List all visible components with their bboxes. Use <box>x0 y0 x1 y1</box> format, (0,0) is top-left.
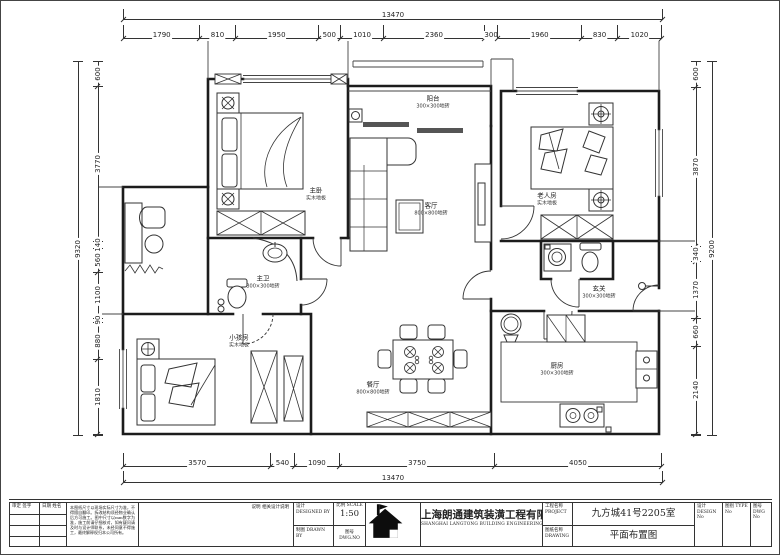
dim-label: 2360 <box>424 31 444 39</box>
dim-label: 600 <box>94 66 102 83</box>
titleblock-date-column: 日期 姓名 <box>40 503 67 546</box>
room-label-master-bath: 主卫300×300地砖 <box>246 275 279 289</box>
dim-segment: 880 <box>93 323 103 360</box>
dim-label: 500 <box>322 31 337 39</box>
dim-segment: 1020 <box>617 25 661 38</box>
kids-room-bed <box>137 339 303 425</box>
dim-label: 90 <box>94 314 102 327</box>
titleblock-sign-column: 审定 签字 <box>10 503 40 546</box>
dim-total-left: 9320 <box>73 61 83 436</box>
dim-segment: 1100 <box>93 273 103 319</box>
dim-label: 1370 <box>692 279 700 301</box>
dim-segment: 140 <box>93 242 103 249</box>
dim-label: 9200 <box>708 238 716 260</box>
dim-segment: 1960 <box>497 25 581 38</box>
room-label-kitchen: 厨房300×300地砖 <box>540 362 573 376</box>
dining-set <box>367 325 491 427</box>
dim-label: 340 <box>692 245 700 262</box>
tail-type-cell: 图别 TYPE No <box>723 503 751 546</box>
dim-segment: 500 <box>318 25 340 38</box>
drawing-name: 平面布置图 <box>573 525 694 546</box>
company-cell: 上海朗通建筑装潢工程有限公司 SHANGHAI LANGTONG BUILDIN… <box>421 503 543 546</box>
dim-segment: 3770 <box>93 87 103 242</box>
dim-label: 13470 <box>380 474 406 482</box>
title-block: 审定 签字 日期 姓名 本图纸尺寸以现场实际尺寸为准，不得擅自翻印。拆改结构须经… <box>9 502 772 547</box>
room-label-living-room: 客厅800×800地砖 <box>414 202 447 216</box>
dim-segment: 660 <box>691 319 701 347</box>
dim-label: 9320 <box>74 238 82 260</box>
room-label-balcony: 阳台300×300地砖 <box>416 95 449 109</box>
sliding-door-balcony <box>363 122 463 133</box>
dim-segment: 1010 <box>340 25 384 38</box>
dim-chain-bottom: 3570540109037504050 <box>123 453 662 467</box>
dim-label: 1950 <box>267 31 287 39</box>
dim-label: 600 <box>692 66 700 83</box>
dim-label: 830 <box>592 31 607 39</box>
dim-segment: 340 <box>691 247 701 262</box>
dim-label: 1010 <box>352 31 372 39</box>
dim-segment: 1370 <box>691 262 701 319</box>
dim-segment: 4050 <box>494 453 661 466</box>
elder-room-bed <box>531 103 613 239</box>
dim-chain-right: 600387034013706602140 <box>691 61 701 436</box>
dim-segment: 600 <box>93 62 103 87</box>
dim-label: 660 <box>692 323 700 340</box>
dim-label: 4050 <box>568 459 588 467</box>
desk-area <box>125 203 165 273</box>
dim-segment: 600 <box>691 62 701 88</box>
dim-total-top: 13470 <box>123 9 663 20</box>
dim-segment: 830 <box>581 25 617 38</box>
room-label-elder-room: 老人房实木地板 <box>537 192 557 206</box>
project-name: 九方城41号2205室 <box>573 503 694 524</box>
dim-label: 1100 <box>94 284 102 306</box>
dim-chain-left: 60037701405601100908801810 <box>93 61 103 436</box>
project-label-column: 工程名称 PROJECT 图纸名称 DRAWING <box>543 503 573 546</box>
dim-segment: 3870 <box>691 88 701 247</box>
dim-segment: 3570 <box>123 453 270 466</box>
titleblock-notes: 本图纸尺寸以现场实际尺寸为准，不得擅自翻印。拆改结构须经物业确认后方可施工。图中… <box>67 503 139 546</box>
house-logo-icon <box>366 503 406 540</box>
company-logo-cell <box>366 503 421 546</box>
dim-segment: 90 <box>93 319 103 324</box>
titleblock-scale-cell: 比例 SCALE 1:50 图号 DWG.NO <box>334 503 366 546</box>
dim-label: 880 <box>94 333 102 350</box>
drawing-sheet: 13470 1790810195050010102360300196083010… <box>0 0 780 555</box>
dim-label: 3570 <box>187 459 207 467</box>
dim-label: 1090 <box>307 459 327 467</box>
dim-total-right: 9200 <box>707 61 717 436</box>
dim-segment: 2140 <box>691 347 701 435</box>
tail-design-cell: 设计 DESIGN No <box>695 503 723 546</box>
dim-segment: 1810 <box>93 360 103 435</box>
room-label-dining-room: 餐厅800×800地砖 <box>356 381 389 395</box>
dim-label: 1960 <box>530 31 550 39</box>
dim-label: 3870 <box>692 156 700 178</box>
dim-chain-top: 179081019505001010236030019608301020 <box>123 25 662 39</box>
dim-label: 13470 <box>380 11 406 19</box>
dim-segment: 1090 <box>294 453 340 466</box>
room-label-entry: 玄关300×300地砖 <box>582 285 615 299</box>
dim-label: 2140 <box>692 379 700 401</box>
dim-label: 1810 <box>94 386 102 408</box>
company-name-en: SHANGHAI LANGTONG BUILDING ENGINEERING C… <box>421 522 542 527</box>
kitchen-fixtures <box>501 315 657 432</box>
tail-number-cell: 图号 DWG No <box>751 503 771 546</box>
dim-label: 1020 <box>630 31 650 39</box>
company-name-cn: 上海朗通建筑装潢工程有限公司 <box>421 509 542 522</box>
dim-segment: 3750 <box>339 453 494 466</box>
room-label-master-bedroom: 主卧实木地板 <box>306 187 326 201</box>
master-bed <box>217 93 305 235</box>
dim-label: 540 <box>275 459 290 467</box>
dim-segment: 2360 <box>383 25 483 38</box>
room-label-kids-room: 小孩房实木地板 <box>229 334 249 348</box>
dim-label: 3770 <box>94 153 102 175</box>
dim-segment: 1790 <box>123 25 199 38</box>
dim-total-bottom: 13470 <box>123 471 663 483</box>
project-name-column: 九方城41号2205室 平面布置图 <box>573 503 695 546</box>
dim-segment: 1950 <box>235 25 318 38</box>
titleblock-description: 说明 相关设计说明 <box>139 503 294 546</box>
scale-value: 1:50 <box>334 509 365 519</box>
guest-bathroom-fixtures <box>544 243 601 272</box>
titleblock-designer-column: 设计 DESIGNED BY 制图 DRAWN BY <box>294 503 334 546</box>
dim-segment: 300 <box>484 25 498 38</box>
dim-segment: 810 <box>199 25 234 38</box>
dim-label: 810 <box>210 31 225 39</box>
dim-label: 560 <box>94 252 102 269</box>
dim-segment: 540 <box>270 453 293 466</box>
dim-label: 3750 <box>407 459 427 467</box>
dim-label: 1790 <box>152 31 172 39</box>
dim-segment: 560 <box>93 249 103 273</box>
